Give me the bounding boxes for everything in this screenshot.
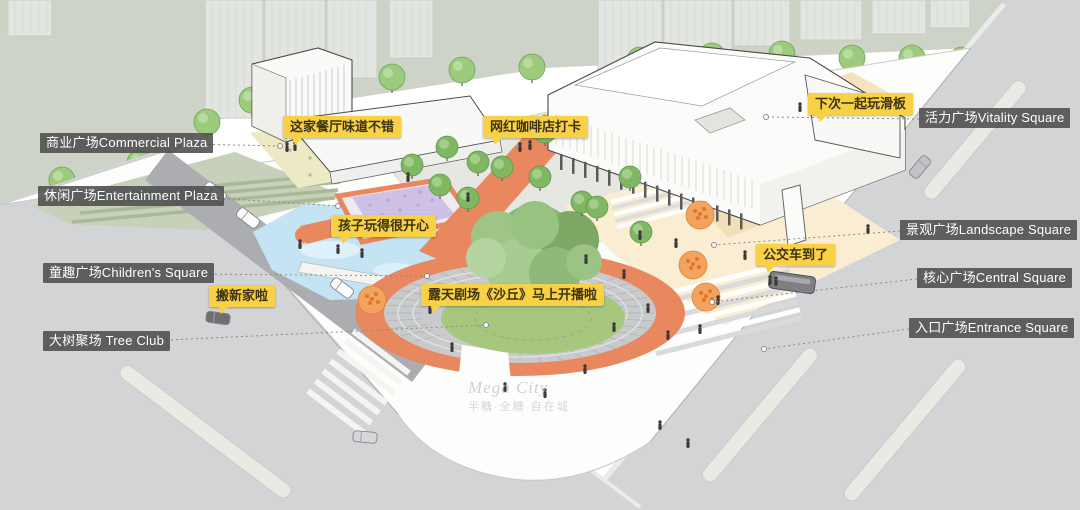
person-body	[336, 248, 339, 255]
person-body	[293, 145, 296, 152]
site-plan-rendering	[0, 0, 1080, 510]
person-body	[666, 334, 669, 341]
autumn-leaf-dot	[699, 291, 703, 295]
tree-highlight	[494, 159, 504, 169]
tree-highlight	[470, 154, 480, 164]
play-dot	[418, 190, 422, 194]
autumn-leaf-dot	[697, 265, 701, 269]
tower-block	[872, 0, 926, 34]
person-body	[612, 326, 615, 333]
person-body	[698, 328, 701, 335]
autumn-leaf-dot	[368, 301, 372, 305]
person-head	[528, 140, 531, 143]
autumn-leaf-dot	[704, 294, 708, 298]
column-tick	[572, 158, 575, 174]
person-head	[638, 230, 641, 233]
person-head	[622, 269, 625, 272]
person-head	[584, 254, 587, 257]
autumn-leaf-dot	[696, 216, 700, 220]
tree-highlight	[432, 177, 442, 187]
column-tick	[560, 154, 563, 170]
speech-bubble-restaurant: 这家餐厅味道不错	[283, 116, 401, 138]
plaza-label-children: 童趣广场Children's Square	[43, 263, 214, 283]
tree-highlight	[53, 171, 63, 181]
autumn-leaf-dot	[702, 298, 706, 302]
person-body	[584, 258, 587, 265]
tree-highlight	[532, 169, 542, 179]
person-body	[674, 242, 677, 249]
tree-highlight	[622, 169, 632, 179]
autumn-leaf-dot	[691, 262, 695, 266]
tree-highlight	[383, 68, 393, 78]
leader-endpoint	[336, 204, 341, 209]
person-body	[638, 234, 641, 241]
person-body	[743, 254, 746, 261]
column-tick	[728, 209, 731, 225]
person-body	[406, 176, 409, 183]
speech-bubble-bus: 公交车到了	[756, 244, 835, 266]
autumn-leaf-dot	[693, 209, 697, 213]
plaza-label-tree_club: 大树聚场 Tree Club	[43, 331, 170, 351]
tree-highlight	[589, 199, 599, 209]
person-body	[583, 368, 586, 375]
plaza-label-entertainment: 休闲广场Entertainment Plaza	[38, 186, 224, 206]
play-dot	[398, 208, 402, 212]
water-highlight	[300, 241, 360, 259]
person-head	[674, 238, 677, 241]
leader-endpoint	[710, 300, 715, 305]
tower-block	[930, 0, 970, 28]
person-head	[866, 224, 869, 227]
tree-highlight	[773, 45, 783, 55]
person-body	[658, 424, 661, 431]
play-dot	[368, 203, 372, 207]
footprint-dot	[308, 156, 311, 159]
car	[353, 430, 378, 443]
site-plan-page: 商业广场Commercial Plaza休闲广场Entertainment Pl…	[0, 0, 1080, 510]
car-body	[353, 430, 378, 443]
person-body	[798, 106, 801, 113]
autumn-leaf-dot	[704, 215, 708, 219]
leader-endpoint	[764, 115, 769, 120]
column-tick	[740, 213, 743, 229]
person-body	[518, 146, 521, 153]
person-head	[466, 192, 469, 195]
autumn-leaf-dot	[365, 294, 369, 298]
plaza-label-landscape: 景观广场Landscape Square	[900, 220, 1077, 240]
tree-highlight	[404, 157, 414, 167]
tree-highlight	[523, 58, 533, 68]
leader-endpoint	[712, 243, 717, 248]
street-tree	[194, 109, 220, 135]
play-dot	[386, 198, 390, 202]
speech-bubble-moving: 搬新家啦	[209, 285, 275, 307]
person-body	[543, 392, 546, 399]
autumn-leaf-dot	[708, 289, 712, 293]
person-head	[768, 275, 771, 278]
autumn-leaf-dot	[689, 266, 693, 270]
person-head	[503, 382, 506, 385]
tree-highlight	[198, 113, 208, 123]
speech-bubble-skateboard: 下次一起玩滑板	[808, 93, 913, 115]
big-tree-canopy	[511, 201, 559, 249]
person-head	[285, 142, 288, 145]
column-tick	[716, 205, 719, 221]
street-tree	[519, 54, 545, 80]
person-head	[686, 438, 689, 441]
play-dot	[430, 198, 434, 202]
person-body	[285, 146, 288, 153]
person-head	[360, 248, 363, 251]
person-body	[360, 252, 363, 259]
autumn-leaf-dot	[370, 297, 374, 301]
footprint-dot	[288, 148, 291, 151]
tree-highlight	[843, 49, 853, 59]
person-body	[768, 279, 771, 286]
autumn-leaf-dot	[374, 292, 378, 296]
plaza-label-central: 核心广场Central Square	[917, 268, 1072, 288]
column-tick	[656, 186, 659, 202]
leader-endpoint	[484, 323, 489, 328]
person-body	[450, 346, 453, 353]
play-dot	[403, 194, 407, 198]
big-tree-canopy	[566, 244, 602, 280]
person-head	[698, 324, 701, 327]
person-head	[583, 364, 586, 367]
autumn-leaf-dot	[376, 300, 380, 304]
tree-highlight	[453, 61, 463, 71]
tree-highlight	[574, 194, 584, 204]
deck-arm-tip	[295, 227, 311, 243]
person-head	[646, 303, 649, 306]
play-dot	[416, 203, 420, 207]
leader-endpoint	[762, 347, 767, 352]
person-head	[518, 142, 521, 145]
person-head	[798, 102, 801, 105]
person-head	[298, 239, 301, 242]
speech-bubble-kids: 孩子玩得很开心	[331, 215, 436, 237]
person-head	[336, 244, 339, 247]
person-body	[298, 243, 301, 250]
person-body	[503, 386, 506, 393]
column-tick	[680, 194, 683, 210]
person-body	[774, 280, 777, 287]
person-head	[774, 276, 777, 279]
footprint-dot	[308, 173, 311, 176]
tree-highlight	[439, 139, 449, 149]
column-tick	[644, 182, 647, 198]
person-head	[612, 322, 615, 325]
person-head	[716, 295, 719, 298]
street-tree	[379, 64, 405, 90]
column-tick	[584, 162, 587, 178]
autumn-leaf-dot	[698, 212, 702, 216]
speech-bubble-theater: 露天剧场《沙丘》马上开播啦	[421, 284, 604, 306]
plaza-label-entrance: 入口广场Entrance Square	[909, 318, 1074, 338]
column-tick	[596, 166, 599, 182]
column-tick	[668, 190, 671, 206]
column-tick	[608, 170, 611, 186]
person-head	[450, 342, 453, 345]
person-head	[666, 330, 669, 333]
person-head	[658, 420, 661, 423]
autumn-leaf-dot	[695, 257, 699, 261]
person-body	[646, 307, 649, 314]
person-body	[466, 196, 469, 203]
big-tree-canopy	[466, 238, 506, 278]
plaza-label-commercial: 商业广场Commercial Plaza	[40, 133, 213, 153]
person-head	[406, 172, 409, 175]
plaza-label-vitality: 活力广场Vitality Square	[919, 108, 1070, 128]
tower-block	[734, 0, 790, 46]
street-tree	[449, 57, 475, 83]
autumn-leaf-dot	[702, 207, 706, 211]
person-body	[686, 442, 689, 449]
person-head	[543, 388, 546, 391]
speech-bubble-coffee: 网红咖啡店打卡	[483, 116, 588, 138]
person-head	[743, 250, 746, 253]
person-body	[622, 273, 625, 280]
leader-endpoint	[278, 144, 283, 149]
person-body	[528, 144, 531, 151]
leader-endpoint	[425, 274, 430, 279]
autumn-leaf-dot	[686, 259, 690, 263]
